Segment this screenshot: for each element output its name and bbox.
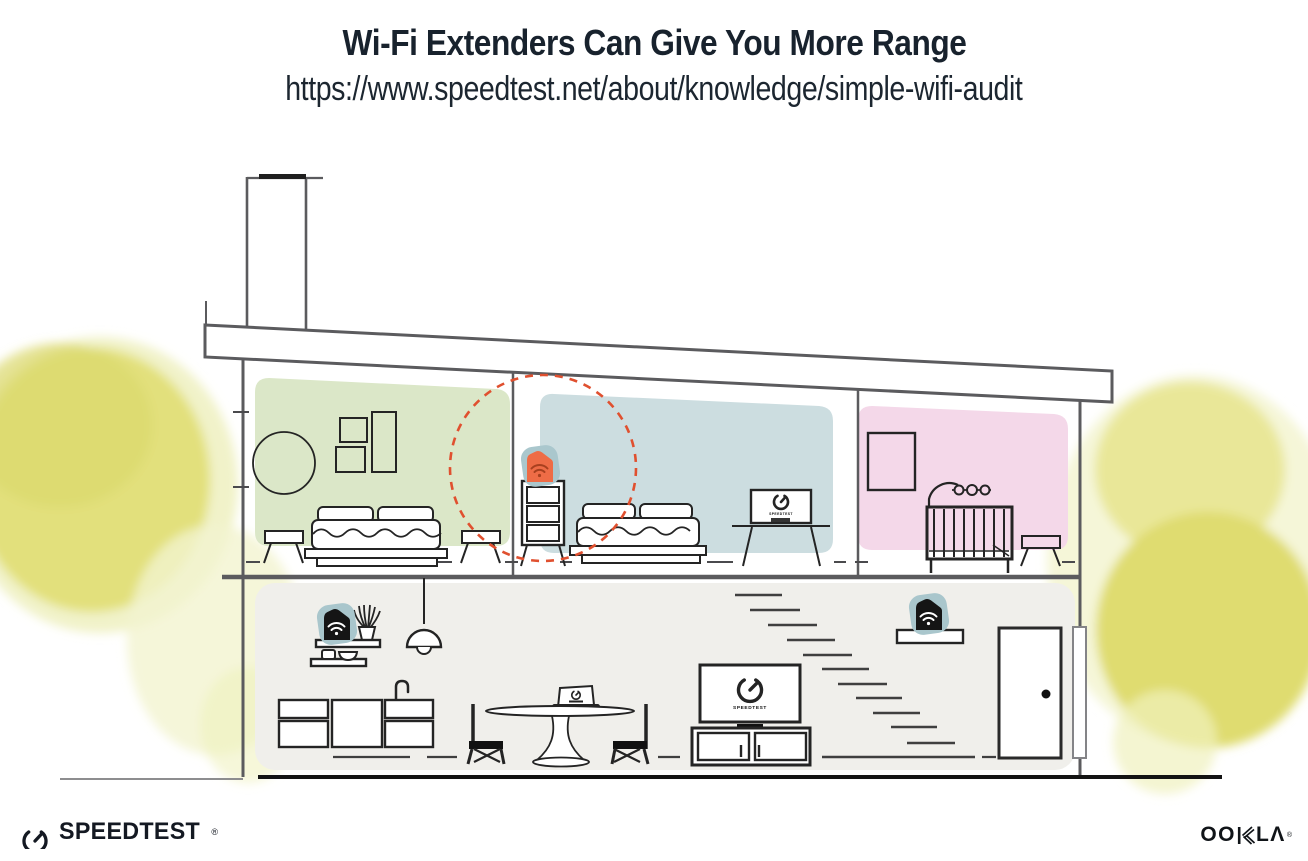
bedroom-tv-label: SPEEDTEST (769, 512, 793, 516)
entry-door (999, 627, 1086, 758)
door-knob (1042, 690, 1051, 699)
wifi-router-downstairs-left (315, 602, 358, 647)
chimney (247, 177, 323, 333)
wifi-extender-downstairs-right (907, 592, 950, 637)
speedtest-reg-mark: ® (211, 827, 218, 837)
speedtest-gauge-icon (18, 815, 52, 849)
house-cross-section-illustration: SPEEDTEST (0, 0, 1308, 861)
bowl (339, 652, 357, 660)
ookla-wordmark-left: OO (1200, 823, 1236, 847)
living-room-tv: SPEEDTEST (692, 665, 810, 765)
ookla-wordmark-right: LΛ (1256, 823, 1286, 847)
ookla-logo: OO LΛ ® (1200, 823, 1292, 847)
cup (322, 650, 335, 659)
lower-shelf (311, 659, 366, 666)
speedtest-logo: SPEEDTEST ® (18, 815, 218, 849)
speedtest-wordmark: SPEEDTEST (59, 818, 200, 846)
wifi-extender-upstairs (519, 444, 561, 489)
door-frame-strip (1073, 627, 1086, 758)
ookla-reg-mark: ® (1287, 832, 1292, 839)
media-console (692, 728, 810, 765)
ookla-k-icon (1237, 826, 1255, 845)
dresser (521, 481, 565, 566)
living-tv-label: SPEEDTEST (733, 705, 767, 711)
